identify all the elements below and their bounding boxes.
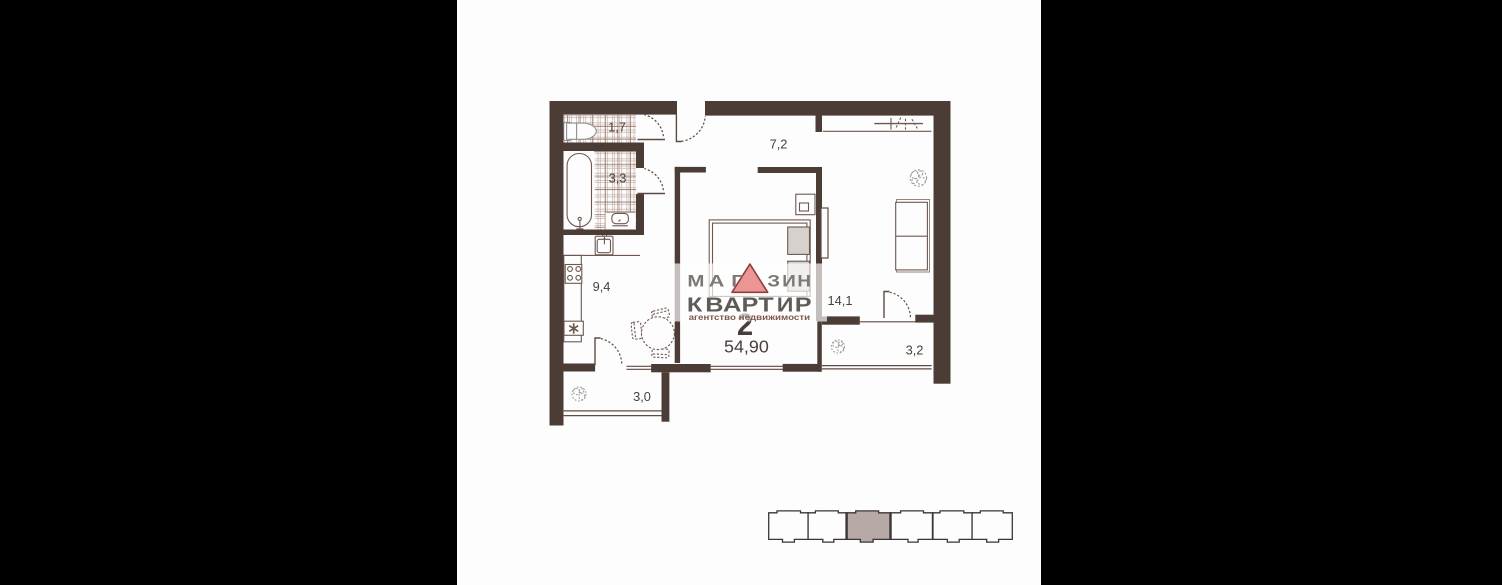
svg-text:И: И bbox=[782, 271, 796, 290]
svg-text:7,2: 7,2 bbox=[770, 137, 788, 152]
svg-text:агентство недвижимости: агентство недвижимости bbox=[689, 312, 811, 322]
svg-text:54,90: 54,90 bbox=[724, 337, 769, 357]
svg-text:Н: Н bbox=[797, 271, 811, 290]
svg-text:3,3: 3,3 bbox=[609, 171, 627, 186]
svg-text:А: А bbox=[709, 272, 725, 291]
svg-text:1,7: 1,7 bbox=[608, 120, 626, 135]
svg-text:Г: Г bbox=[731, 272, 743, 291]
svg-text:З: З bbox=[767, 271, 780, 290]
svg-text:3,2: 3,2 bbox=[906, 343, 924, 358]
svg-text:М: М bbox=[687, 271, 704, 290]
svg-text:14,1: 14,1 bbox=[828, 293, 853, 308]
svg-text:9,4: 9,4 bbox=[593, 279, 611, 294]
svg-text:3,0: 3,0 bbox=[633, 389, 651, 404]
